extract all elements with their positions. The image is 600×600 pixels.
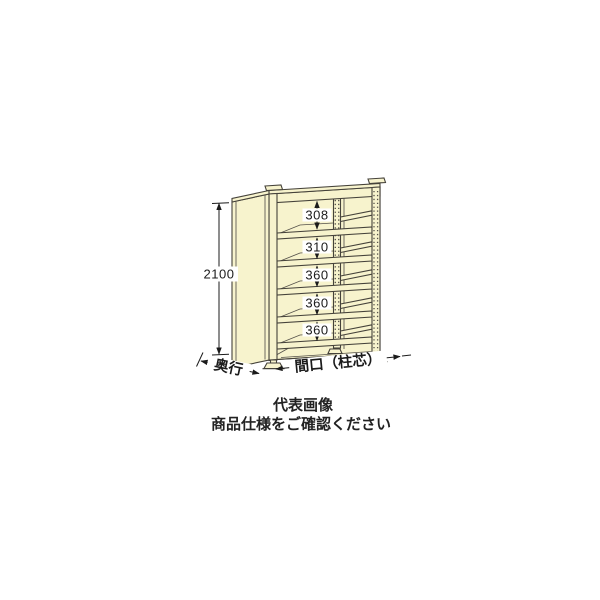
caption-line-1: 代表画像 [272, 396, 334, 414]
caption-line-2: 商品仕様をご確認ください [211, 415, 391, 433]
product-image-page: 2100 308 310 360 360 360 奥行 間口（柱芯） [0, 0, 600, 600]
gap-dimension-1: 308 [305, 208, 328, 223]
gap-dimension-4: 360 [305, 296, 328, 311]
height-dimension-label: 2100 [204, 267, 235, 282]
caption: 代表画像 商品仕様をご確認ください [211, 396, 391, 433]
shelving-rack-diagram: 2100 308 310 360 360 360 奥行 間口（柱芯） [0, 0, 600, 600]
gap-dimension-2: 310 [305, 240, 328, 255]
gap-dimension-3: 360 [305, 268, 328, 283]
gap-dimension-5: 360 [305, 323, 328, 338]
